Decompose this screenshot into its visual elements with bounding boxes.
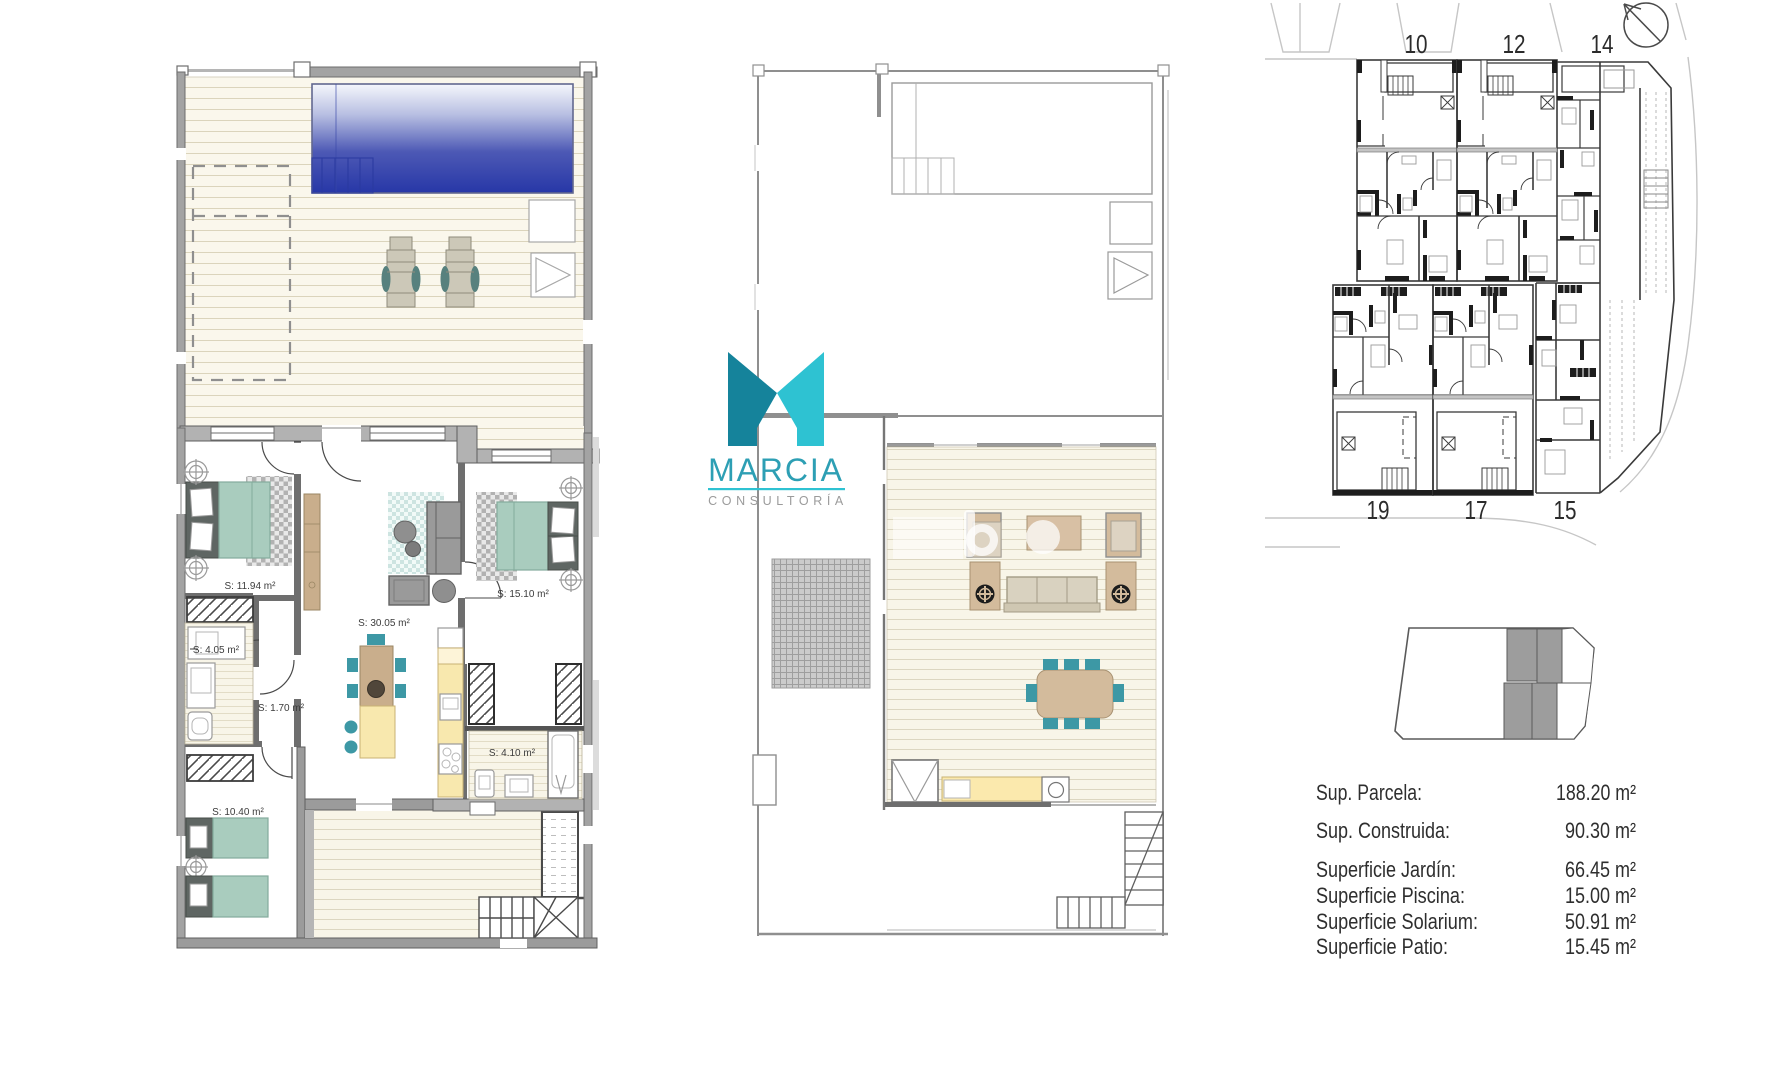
svg-text:19: 19: [1367, 495, 1390, 525]
svg-text:Sup. Parcela:: Sup. Parcela:: [1316, 780, 1422, 805]
svg-text:Superficie Piscina:: Superficie Piscina:: [1316, 883, 1465, 908]
svg-text:S: 4.10 m²: S: 4.10 m²: [489, 748, 536, 759]
svg-text:Sup. Construida:: Sup. Construida:: [1316, 818, 1450, 843]
svg-text:Superficie Patio:: Superficie Patio:: [1316, 934, 1448, 959]
svg-text:50.91 m²: 50.91 m²: [1565, 909, 1636, 934]
svg-text:15: 15: [1554, 495, 1577, 525]
svg-text:15.00 m²: 15.00 m²: [1565, 883, 1636, 908]
svg-text:90.30 m²: 90.30 m²: [1565, 818, 1636, 843]
svg-text:CONSULTORÍA: CONSULTORÍA: [708, 493, 848, 508]
svg-text:S: 30.05 m²: S: 30.05 m²: [358, 618, 410, 629]
svg-text:15.45 m²: 15.45 m²: [1565, 934, 1636, 959]
svg-text:MARCIA: MARCIA: [708, 452, 844, 488]
svg-text:S: 1.70 m²: S: 1.70 m²: [258, 703, 305, 714]
svg-text:10: 10: [1405, 29, 1428, 59]
svg-text:14: 14: [1591, 29, 1614, 59]
svg-text:S: 15.10 m²: S: 15.10 m²: [497, 589, 549, 600]
svg-text:S: 4.05 m²: S: 4.05 m²: [193, 645, 240, 656]
svg-text:66.45 m²: 66.45 m²: [1565, 857, 1636, 882]
svg-text:S: 10.40 m²: S: 10.40 m²: [212, 807, 264, 818]
svg-text:Superficie Solarium:: Superficie Solarium:: [1316, 909, 1478, 934]
svg-text:12: 12: [1503, 29, 1526, 59]
svg-text:17: 17: [1465, 495, 1488, 525]
svg-text:S: 11.94 m²: S: 11.94 m²: [225, 581, 277, 592]
svg-text:Superficie Jardín:: Superficie Jardín:: [1316, 857, 1456, 882]
svg-text:188.20 m²: 188.20 m²: [1556, 780, 1636, 805]
